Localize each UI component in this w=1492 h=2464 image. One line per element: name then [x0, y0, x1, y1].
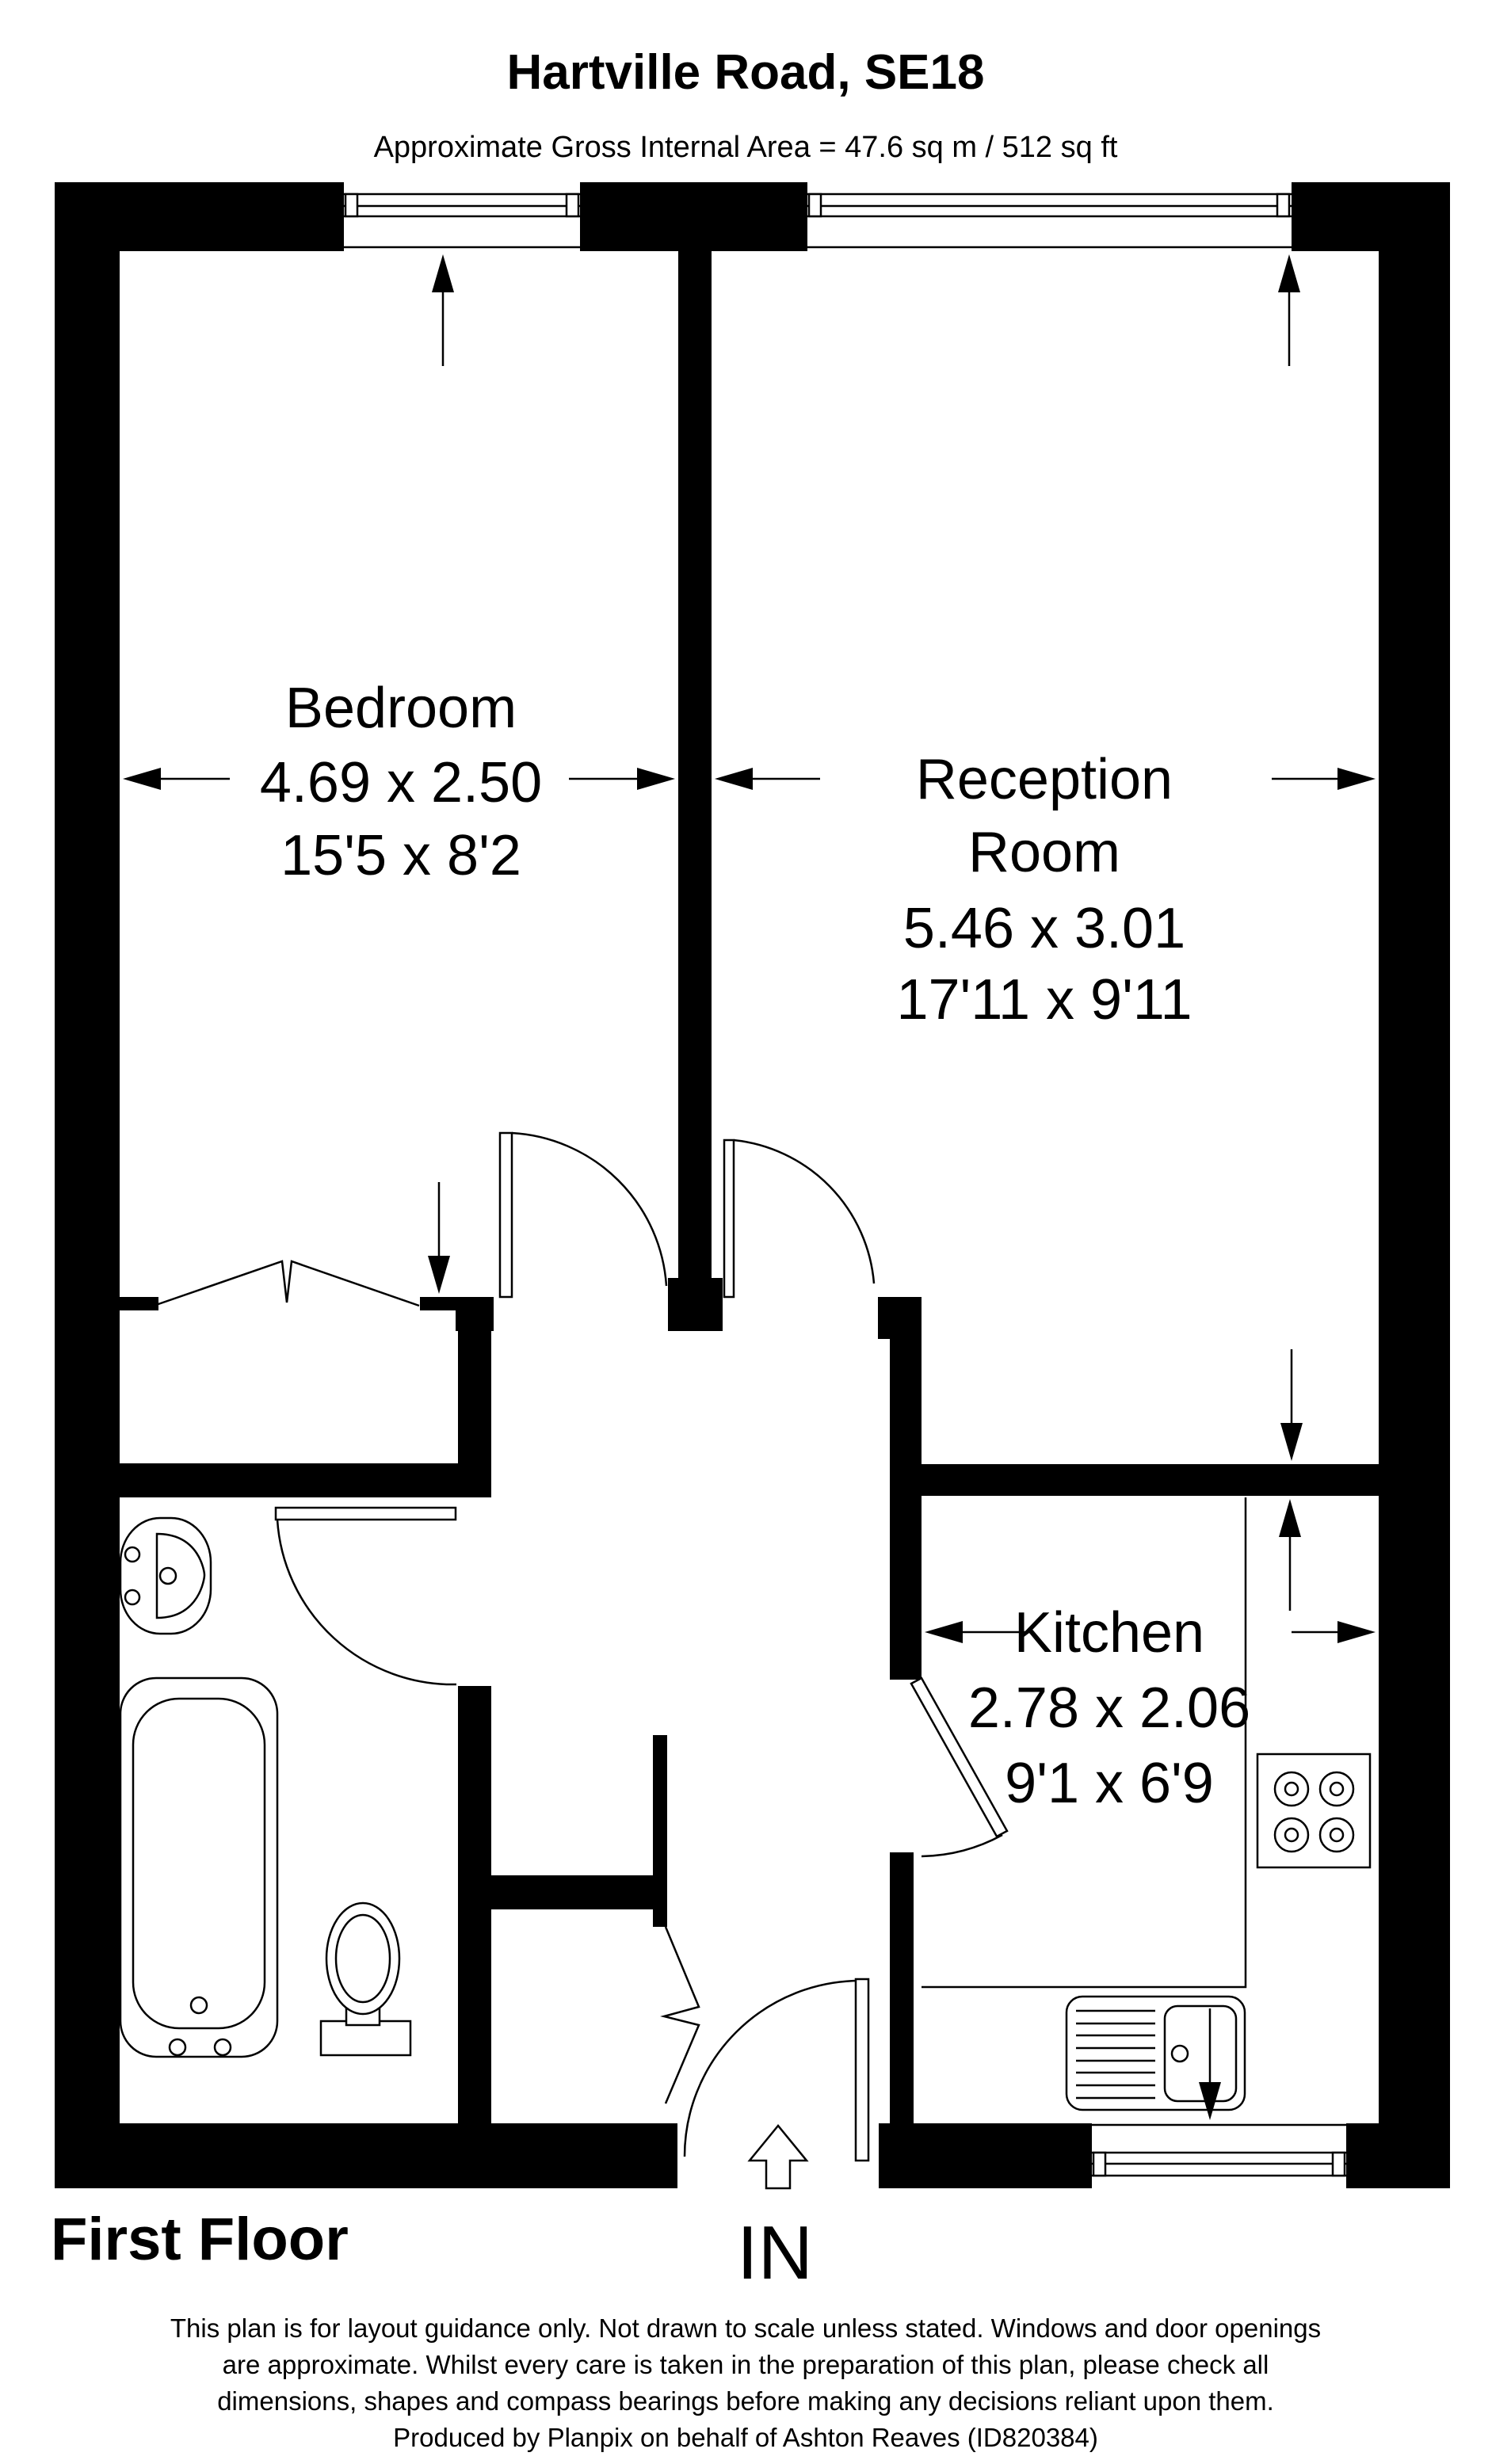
wall-wardrobe-stub-left: [120, 1297, 158, 1310]
reception-name-line1: Reception: [916, 748, 1173, 811]
kitchen-window: [1092, 2120, 1346, 2188]
door-leaf: [724, 1140, 734, 1297]
wall-right: [1379, 182, 1450, 2188]
wall-bathroom-top: [120, 1463, 489, 1497]
door-leaf: [276, 1508, 456, 1520]
reception-dims-imperial: 17'11 x 9'11: [896, 968, 1192, 1032]
kitchen-dims-imperial: 9'1 x 6'9: [1005, 1752, 1214, 1815]
reception-window: [807, 182, 1292, 251]
bedroom-dims-imperial: 15'5 x 8'2: [280, 824, 521, 887]
bedroom-dims-metric: 4.69 x 2.50: [260, 751, 542, 814]
entrance-label: IN: [737, 2210, 813, 2295]
reception-dims-metric: 5.46 x 3.01: [903, 897, 1185, 960]
wall-kitchen-corner-block: [878, 1297, 922, 1339]
page-subtitle: Approximate Gross Internal Area = 47.6 s…: [374, 131, 1118, 164]
door-leaf: [500, 1133, 512, 1297]
wall-bottom-middle: [879, 2123, 1092, 2188]
reception-name-line2: Room: [968, 821, 1120, 884]
window-opening: [1092, 2120, 1346, 2188]
wall-bottom-right: [1346, 2123, 1450, 2188]
disclaimer-line-1: This plan is for layout guidance only. N…: [170, 2313, 1321, 2343]
kitchen-name: Kitchen: [1014, 1601, 1204, 1665]
floorplan-page: Hartville Road, SE18 Approximate Gross I…: [0, 0, 1492, 2464]
kitchen-sink: [1067, 1997, 1245, 2110]
wall-bottom-left: [55, 2123, 677, 2188]
wall-reception-kitchen: [890, 1464, 1382, 1496]
wall-kitchen-left-upper: [890, 1339, 922, 1680]
disclaimer-line-3: dimensions, shapes and compass bearings …: [217, 2386, 1274, 2416]
kitchen-dims-metric: 2.78 x 2.06: [968, 1676, 1250, 1740]
floor-plan-canvas: Hartville Road, SE18 Approximate Gross I…: [0, 0, 1492, 2464]
wall-kitchen-left-lower: [890, 1852, 914, 2123]
bedroom-name: Bedroom: [285, 677, 517, 740]
stove-hob: [1257, 1754, 1370, 1867]
door-leaf: [856, 1979, 868, 2161]
page-title: Hartville Road, SE18: [506, 45, 984, 100]
floor-label: First Floor: [51, 2206, 349, 2273]
bathtub: [120, 1678, 277, 2057]
wall-left: [55, 182, 120, 2188]
wall-wardrobe-stub-right: [420, 1297, 456, 1310]
disclaimer-line-2: are approximate. Whilst every care is ta…: [223, 2350, 1269, 2379]
wall-top-middle: [580, 182, 807, 251]
wash-basin: [120, 1518, 211, 1634]
bedroom-window: [344, 182, 580, 251]
background: [0, 0, 1492, 2464]
wall-vestibule-horizontal: [458, 1875, 654, 1909]
disclaimer-line-4: Produced by Planpix on behalf of Ashton …: [393, 2423, 1098, 2452]
wall-bedroom-door-block: [456, 1297, 494, 1331]
wall-vestibule-vertical: [653, 1735, 667, 1927]
wall-bedroom-reception-divider: [678, 251, 712, 1278]
wall-divider-stub: [668, 1278, 723, 1331]
